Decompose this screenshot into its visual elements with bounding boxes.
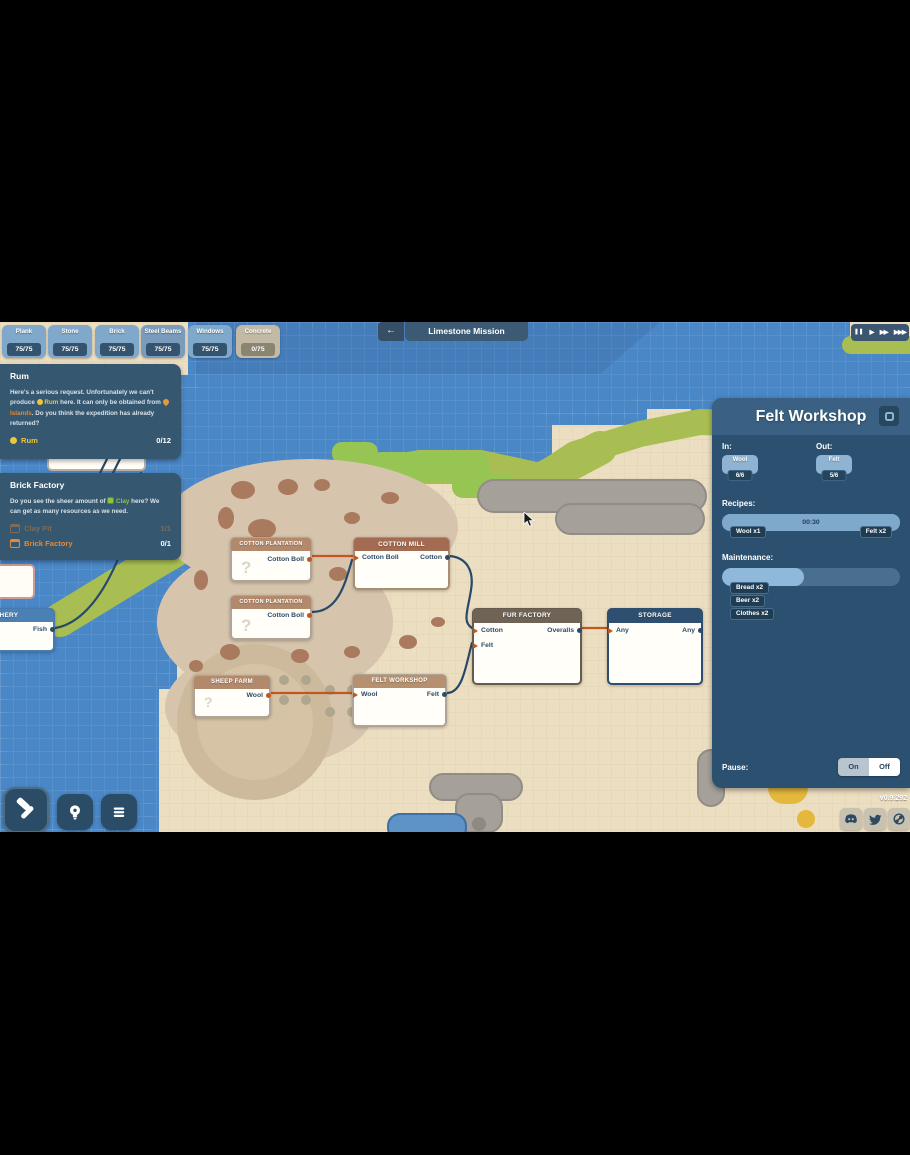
quest-description: Here's a serious request. Unfortunately … — [10, 388, 171, 430]
out-label: Out: — [816, 442, 832, 451]
resource-chip-concrete[interactable]: Concrete 0/75 — [236, 325, 280, 358]
maintenance-label: Maintenance: — [722, 553, 773, 562]
output-slot-felt[interactable]: Felt 5/6 — [816, 455, 852, 474]
steam-button[interactable] — [888, 808, 910, 830]
node-felt-workshop[interactable]: FELT WORKSHOP Wool Felt — [352, 674, 447, 727]
resource-name: Concrete — [236, 328, 280, 335]
in-label: In: — [722, 442, 732, 451]
resource-chip-brick[interactable]: Brick 75/75 — [95, 325, 139, 358]
discord-icon — [843, 811, 859, 827]
building-icon — [10, 539, 20, 548]
port-arrow-icon — [473, 628, 478, 634]
pause-off-button[interactable]: Off — [869, 758, 900, 776]
node-sheep-farm[interactable]: SHEEP FARM ? Wool — [193, 675, 271, 718]
port-output-felt[interactable]: Felt — [427, 691, 445, 698]
node-title: COTTON PLANTATION — [231, 538, 311, 551]
recipe-input-chip: Wool x1 — [730, 526, 766, 538]
play-button[interactable]: ▶ — [870, 324, 874, 341]
screen: Plank 75/75 Stone 75/75 Brick 75/75 Stee… — [0, 0, 910, 1155]
resource-count: 75/75 — [7, 343, 41, 356]
node-fishery[interactable]: FISHERY Fish — [0, 608, 55, 652]
resource-chip-stone[interactable]: Stone 75/75 — [48, 325, 92, 358]
node-title: FELT WORKSHOP — [353, 675, 446, 688]
resource-name: Plank — [2, 328, 46, 335]
port-dot-icon — [445, 555, 450, 560]
resource-count: 0/75 — [241, 343, 275, 356]
slot-count-badge: 5/6 — [822, 470, 847, 481]
input-slot-wool[interactable]: Wool 6/6 — [722, 455, 758, 474]
port-dot-icon — [698, 628, 703, 633]
objective-progress: 0/1 — [160, 539, 171, 548]
islands-pin-icon — [161, 398, 169, 406]
build-button[interactable] — [3, 787, 49, 832]
steam-icon — [891, 811, 907, 827]
port-dot-icon — [307, 557, 312, 562]
port-output-cotton-boll[interactable]: Cotton Boll — [267, 612, 310, 619]
menu-button[interactable] — [101, 794, 137, 830]
building-panel-felt-workshop: Felt Workshop In: Out: Wool 6/6 Felt 5/6… — [712, 398, 910, 788]
node-title: SHEEP FARM — [194, 676, 270, 689]
pause-toggle: On Off — [838, 758, 900, 776]
quest-description: Do you see the sheer amount of Clay here… — [10, 497, 171, 518]
port-dot-icon — [577, 628, 582, 633]
port-input-felt[interactable]: Felt — [474, 642, 493, 649]
port-output-wool[interactable]: Wool — [247, 692, 270, 699]
objective-progress: 1/1 — [160, 524, 171, 533]
pause-button[interactable]: ❚❚ — [854, 324, 863, 341]
resource-name: Brick — [95, 328, 139, 335]
node-cotton-mill[interactable]: COTTON MILL Cotton Boll Cotton — [353, 537, 450, 590]
building-icon — [10, 524, 20, 533]
port-dot-icon — [50, 627, 55, 632]
port-output-fish[interactable]: Fish — [33, 626, 53, 633]
game-viewport: Plank 75/75 Stone 75/75 Brick 75/75 Stee… — [0, 322, 910, 832]
quest-title: Brick Factory — [10, 480, 171, 490]
node-fur-factory[interactable]: FUR FACTORY Cotton Overalls Felt — [472, 608, 582, 685]
discord-button[interactable] — [840, 808, 862, 830]
node-cotton-plantation-1[interactable]: COTTON PLANTATION ? Cotton Boll — [230, 537, 312, 582]
mission-title: Limestone Mission — [405, 322, 528, 341]
port-output-overalls[interactable]: Overalls — [547, 627, 580, 634]
twitter-icon — [868, 812, 883, 827]
quest-objective-brick-factory: Brick Factory 0/1 — [10, 539, 171, 548]
resource-count: 75/75 — [100, 343, 134, 356]
port-input-wool[interactable]: Wool — [354, 691, 378, 698]
port-input-cotton-boll[interactable]: Cotton Boll — [355, 554, 399, 561]
research-button[interactable] — [57, 794, 93, 830]
mouse-cursor — [523, 512, 535, 528]
node-title: COTTON MILL — [354, 538, 449, 551]
speed-2x-button[interactable]: ▶▶ — [880, 324, 888, 341]
resource-name: Stone — [48, 328, 92, 335]
building-panel-header: Felt Workshop — [712, 398, 910, 435]
mission-back-button[interactable]: ← — [378, 322, 404, 341]
maintenance-item-chip: Bread x2 — [730, 582, 769, 594]
rum-item-icon — [37, 399, 43, 405]
port-dot-icon — [266, 693, 271, 698]
resource-chip-steel-beams[interactable]: Steel Beams 75/75 — [141, 325, 185, 358]
port-input-cotton[interactable]: Cotton — [474, 627, 503, 634]
version-label: v0.9.292 — [837, 795, 907, 802]
slot-count-badge: 6/6 — [728, 470, 753, 481]
speed-3x-button[interactable]: ▶▶▶ — [894, 324, 906, 341]
port-input-any[interactable]: Any — [609, 627, 629, 634]
pause-label: Pause: — [722, 763, 748, 772]
lightbulb-icon — [65, 802, 85, 822]
quest-objective-rum: Rum 0/12 — [10, 436, 171, 445]
resource-chip-windows[interactable]: Windows 75/75 — [188, 325, 232, 358]
rum-item-icon — [10, 437, 17, 444]
quest-panel-brick-factory[interactable]: Brick Factory Do you see the sheer amoun… — [0, 473, 181, 560]
resource-count: 75/75 — [146, 343, 180, 356]
resource-chip-plank[interactable]: Plank 75/75 — [2, 325, 46, 358]
resource-name: Windows — [188, 328, 232, 335]
pause-on-button[interactable]: On — [838, 758, 869, 776]
port-dot-icon — [442, 692, 447, 697]
clay-item-icon — [107, 497, 114, 504]
quest-panel-rum[interactable]: Rum Here's a serious request. Unfortunat… — [0, 364, 181, 459]
maintenance-item-chip: Beer x2 — [730, 595, 765, 607]
port-output-cotton-boll[interactable]: Cotton Boll — [267, 556, 310, 563]
port-output-any[interactable]: Any — [682, 627, 701, 634]
resource-name: Steel Beams — [141, 328, 185, 335]
port-arrow-icon — [608, 628, 613, 634]
port-arrow-icon — [473, 643, 478, 649]
recipes-label: Recipes: — [722, 499, 755, 508]
port-output-cotton[interactable]: Cotton — [420, 554, 448, 561]
building-info-button[interactable] — [879, 406, 899, 426]
building-frame-icon — [885, 412, 894, 421]
twitter-button[interactable] — [864, 808, 886, 830]
playback-controls: ❚❚ ▶ ▶▶ ▶▶▶ — [851, 324, 909, 341]
recipe-output-chip: Felt x2 — [860, 526, 892, 538]
port-arrow-icon — [354, 555, 359, 561]
quest-title: Rum — [10, 371, 171, 381]
port-dot-icon — [307, 613, 312, 618]
node-title: COTTON PLANTATION — [231, 596, 311, 609]
resource-count: 75/75 — [193, 343, 227, 356]
node-title: FISHERY — [0, 609, 54, 622]
node-title: STORAGE — [608, 609, 702, 623]
objective-progress: 0/12 — [156, 436, 171, 445]
port-arrow-icon — [353, 692, 358, 698]
resource-count: 75/75 — [53, 343, 87, 356]
menu-icon — [110, 803, 128, 821]
node-storage[interactable]: STORAGE Any Any — [607, 608, 703, 685]
node-title: FUR FACTORY — [473, 609, 581, 623]
node-cotton-plantation-2[interactable]: COTTON PLANTATION ? Cotton Boll — [230, 595, 312, 640]
hammer-icon — [13, 797, 39, 823]
maintenance-item-chip: Clothes x2 — [730, 608, 774, 620]
quest-objective-clay-pit: Clay Pit 1/1 — [10, 524, 171, 533]
